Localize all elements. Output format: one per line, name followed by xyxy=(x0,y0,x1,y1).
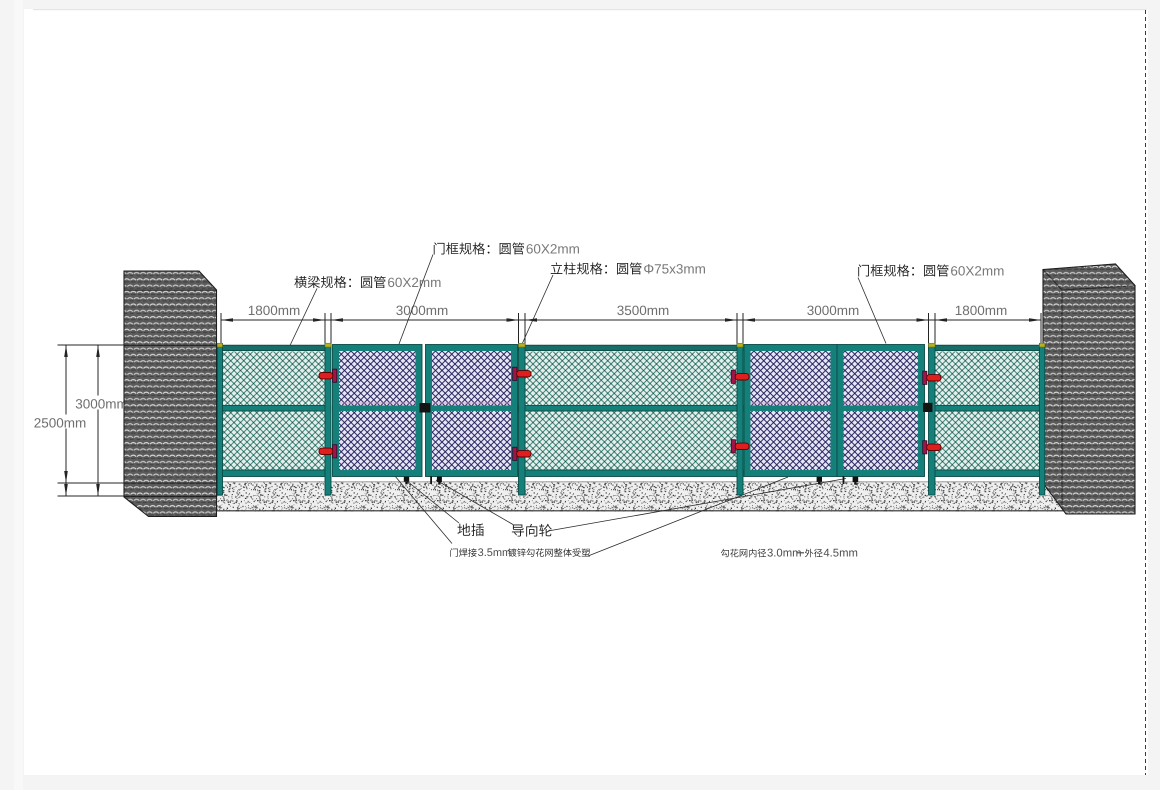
svg-text:3.0mm: 3.0mm xyxy=(767,548,802,560)
svg-text:3000mm: 3000mm xyxy=(396,303,449,318)
svg-text:2500mm: 2500mm xyxy=(34,416,87,431)
svg-text:60X2mm: 60X2mm xyxy=(950,264,1004,279)
svg-text:1800mm: 1800mm xyxy=(248,303,301,318)
svg-text:4.5mm: 4.5mm xyxy=(823,548,858,560)
svg-text:Φ75x3mm: Φ75x3mm xyxy=(643,262,706,277)
svg-text:3000mm: 3000mm xyxy=(75,397,128,412)
svg-text:1800mm: 1800mm xyxy=(955,303,1008,318)
svg-text:60X2mm: 60X2mm xyxy=(387,275,441,290)
svg-text:3500mm: 3500mm xyxy=(617,303,670,318)
svg-text:3000mm: 3000mm xyxy=(807,303,860,318)
svg-text:3.5mm: 3.5mm xyxy=(478,547,512,559)
svg-text:60X2mm: 60X2mm xyxy=(526,242,580,257)
